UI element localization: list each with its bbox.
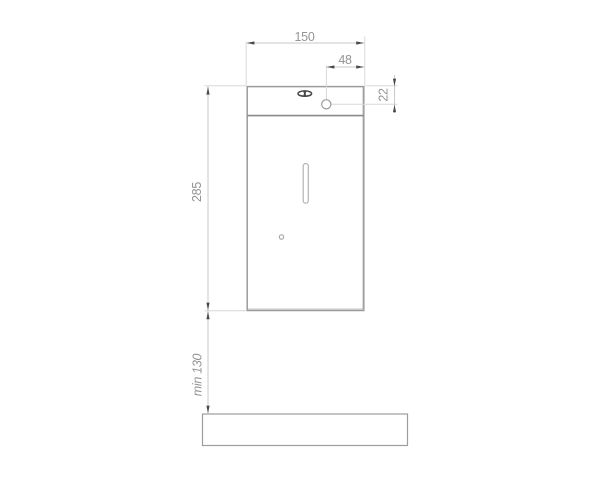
svg-text:48: 48 <box>338 53 352 67</box>
svg-text:285: 285 <box>190 182 204 202</box>
svg-text:min 130: min 130 <box>191 353 205 396</box>
svg-text:22: 22 <box>377 88 391 102</box>
svg-text:150: 150 <box>295 30 315 44</box>
